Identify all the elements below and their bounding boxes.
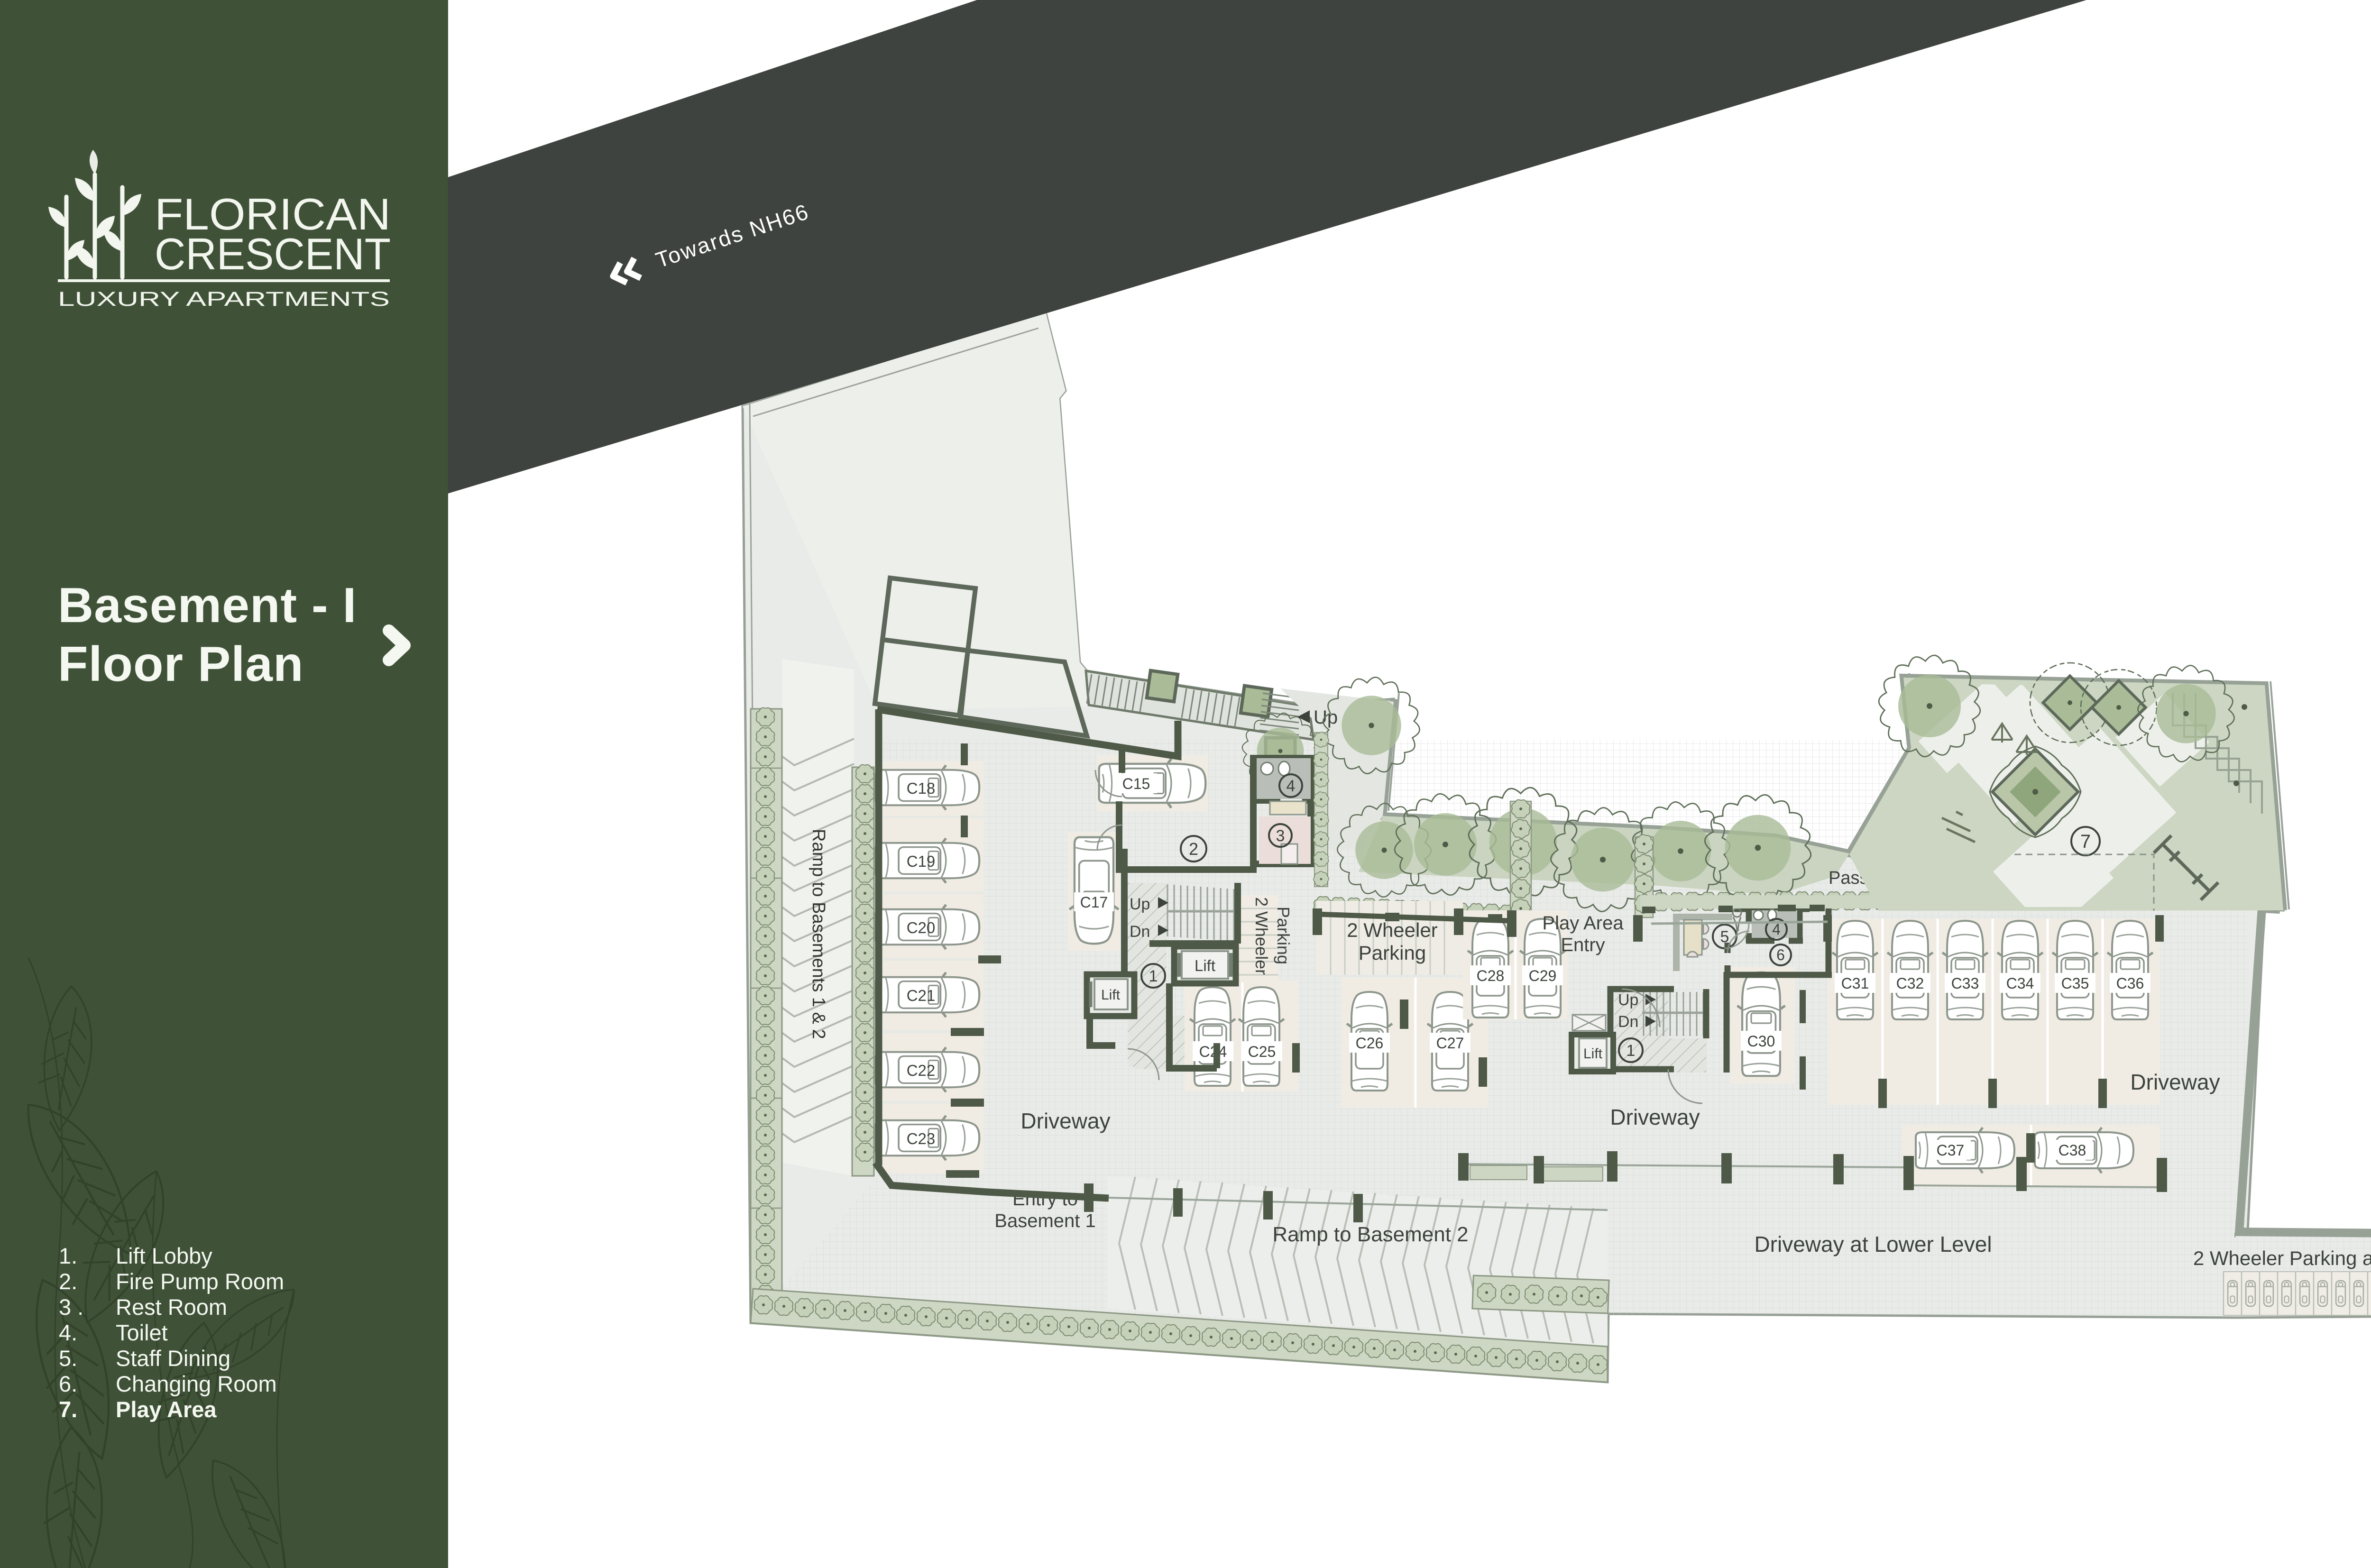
svg-text:6.: 6. [59, 1371, 77, 1396]
svg-text:5.: 5. [59, 1346, 77, 1371]
svg-text:C26: C26 [1356, 1035, 1384, 1052]
svg-text:C37: C37 [1937, 1142, 1965, 1159]
svg-text:Floor Plan: Floor Plan [58, 637, 303, 692]
svg-text:4.: 4. [59, 1320, 77, 1345]
svg-text:C36: C36 [2116, 975, 2144, 992]
svg-text:Driveway at Lower Level: Driveway at Lower Level [1754, 1232, 1992, 1256]
svg-text:2.: 2. [59, 1269, 77, 1294]
svg-text:Lift: Lift [1583, 1046, 1603, 1062]
svg-text:Up: Up [1314, 707, 1338, 728]
svg-text:Up: Up [1618, 991, 1638, 1009]
svg-text:LUXURY APARTMENTS: LUXURY APARTMENTS [58, 288, 390, 311]
svg-text:Driveway: Driveway [2130, 1070, 2220, 1094]
svg-text:Ramp to Basements 1 & 2: Ramp to Basements 1 & 2 [809, 829, 828, 1039]
svg-text:Play Area: Play Area [116, 1397, 217, 1422]
svg-text:C27: C27 [1436, 1035, 1464, 1052]
svg-text:2 Wheeler: 2 Wheeler [1347, 919, 1437, 941]
svg-text:1.: 1. [59, 1243, 77, 1268]
svg-text:Entry: Entry [1561, 935, 1605, 955]
svg-text:C17: C17 [1080, 894, 1108, 911]
svg-text:Rest Room: Rest Room [116, 1294, 227, 1320]
svg-text:Lift: Lift [1195, 957, 1215, 974]
svg-text:Ramp to Basement 2: Ramp to Basement 2 [1272, 1223, 1468, 1246]
svg-text:Play Area: Play Area [1542, 913, 1624, 934]
svg-text:4: 4 [1287, 777, 1296, 795]
svg-text:C19: C19 [907, 853, 936, 870]
svg-text:C35: C35 [2061, 975, 2089, 992]
svg-text:Basement - I: Basement - I [58, 578, 357, 633]
svg-text:C20: C20 [907, 919, 936, 936]
svg-text:C34: C34 [2006, 975, 2034, 992]
svg-text:C33: C33 [1951, 975, 1979, 992]
svg-text:C28: C28 [1477, 967, 1505, 984]
svg-text:C38: C38 [2059, 1142, 2086, 1159]
svg-text:C29: C29 [1529, 967, 1557, 984]
svg-text:Staff Dining: Staff Dining [116, 1346, 230, 1371]
svg-text:Fire Pump Room: Fire Pump Room [116, 1269, 284, 1294]
svg-text:Lift Lobby: Lift Lobby [116, 1243, 212, 1268]
svg-text:7.: 7. [59, 1397, 77, 1422]
svg-text:CRESCENT: CRESCENT [155, 229, 391, 279]
svg-text:C21: C21 [907, 987, 936, 1004]
svg-text:3: 3 [1276, 827, 1285, 845]
svg-text:Driveway: Driveway [1020, 1109, 1110, 1133]
svg-text:Driveway: Driveway [1610, 1105, 1700, 1129]
svg-text:Dn: Dn [1130, 923, 1150, 941]
svg-text:Parking: Parking [1359, 942, 1426, 964]
svg-text:Lift: Lift [1101, 987, 1121, 1003]
svg-text:Parking: Parking [1274, 907, 1293, 964]
svg-text:C32: C32 [1896, 975, 1924, 992]
svg-text:6: 6 [1776, 946, 1785, 963]
svg-text:Up: Up [1130, 895, 1150, 913]
svg-text:C25: C25 [1248, 1043, 1276, 1060]
svg-text:Basement 1: Basement 1 [994, 1210, 1095, 1231]
svg-text:C23: C23 [907, 1130, 936, 1147]
svg-text:C30: C30 [1747, 1033, 1775, 1050]
svg-text:2 Wheeler: 2 Wheeler [1252, 897, 1271, 975]
svg-text:C18: C18 [907, 779, 936, 797]
svg-text:3 .: 3 . [59, 1294, 83, 1320]
svg-text:Changing Room: Changing Room [116, 1371, 277, 1396]
svg-text:2 Wheeler Parking at Lower Lev: 2 Wheeler Parking at Lower Level [2193, 1247, 2371, 1269]
svg-text:Dn: Dn [1618, 1013, 1638, 1031]
svg-text:2: 2 [1189, 839, 1198, 859]
svg-text:1: 1 [1149, 967, 1158, 985]
svg-text:7: 7 [2080, 831, 2091, 852]
svg-text:C15: C15 [1122, 775, 1150, 792]
svg-text:C24: C24 [1199, 1043, 1227, 1060]
svg-text:C31: C31 [1841, 975, 1869, 992]
svg-text:Toilet: Toilet [116, 1320, 168, 1345]
svg-text:5: 5 [1720, 928, 1729, 946]
svg-text:1: 1 [1627, 1042, 1636, 1060]
svg-text:C22: C22 [907, 1062, 936, 1079]
